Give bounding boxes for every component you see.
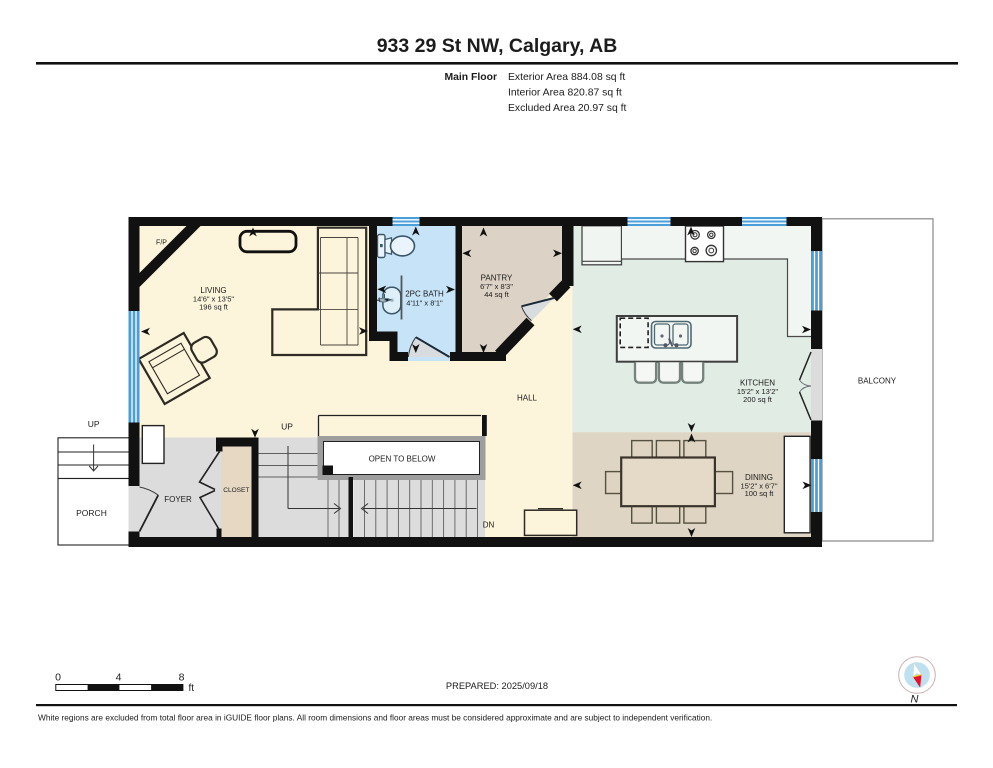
svg-text:White regions are excluded fro: White regions are excluded from total fl…: [38, 713, 712, 723]
svg-text:UP: UP: [281, 422, 293, 432]
svg-text:8: 8: [179, 672, 185, 684]
svg-text:PORCH: PORCH: [76, 508, 107, 518]
svg-text:ft: ft: [189, 683, 195, 694]
svg-text:OPEN TO BELOW: OPEN TO BELOW: [369, 455, 436, 464]
svg-text:Excluded Area 20.97 sq ft: Excluded Area 20.97 sq ft: [508, 103, 627, 114]
svg-text:4'11" x 8'1": 4'11" x 8'1": [406, 299, 443, 308]
svg-text:100 sq ft: 100 sq ft: [745, 489, 775, 498]
svg-text:N: N: [911, 694, 919, 706]
svg-text:UP: UP: [88, 419, 100, 429]
svg-text:FOYER: FOYER: [164, 495, 192, 504]
svg-text:PREPARED: 2025/09/18: PREPARED: 2025/09/18: [446, 681, 548, 691]
svg-text:CLOSET: CLOSET: [223, 487, 249, 494]
svg-text:4: 4: [116, 672, 122, 684]
svg-text:933 29 St NW, Calgary, AB: 933 29 St NW, Calgary, AB: [377, 35, 618, 57]
svg-text:Main Floor: Main Floor: [444, 72, 497, 83]
svg-text:200 sq ft: 200 sq ft: [743, 395, 773, 404]
svg-text:HALL: HALL: [517, 393, 538, 402]
svg-text:Exterior Area 884.08 sq ft: Exterior Area 884.08 sq ft: [508, 72, 625, 83]
svg-text:196 sq ft: 196 sq ft: [199, 302, 229, 311]
svg-text:0: 0: [55, 672, 61, 684]
svg-text:F/P: F/P: [156, 239, 167, 246]
svg-text:BALCONY: BALCONY: [858, 377, 897, 386]
svg-text:Interior Area 820.87 sq ft: Interior Area 820.87 sq ft: [508, 88, 622, 99]
svg-text:DN: DN: [483, 521, 495, 530]
svg-text:44 sq ft: 44 sq ft: [484, 290, 510, 299]
svg-text:2PC BATH: 2PC BATH: [405, 290, 444, 299]
